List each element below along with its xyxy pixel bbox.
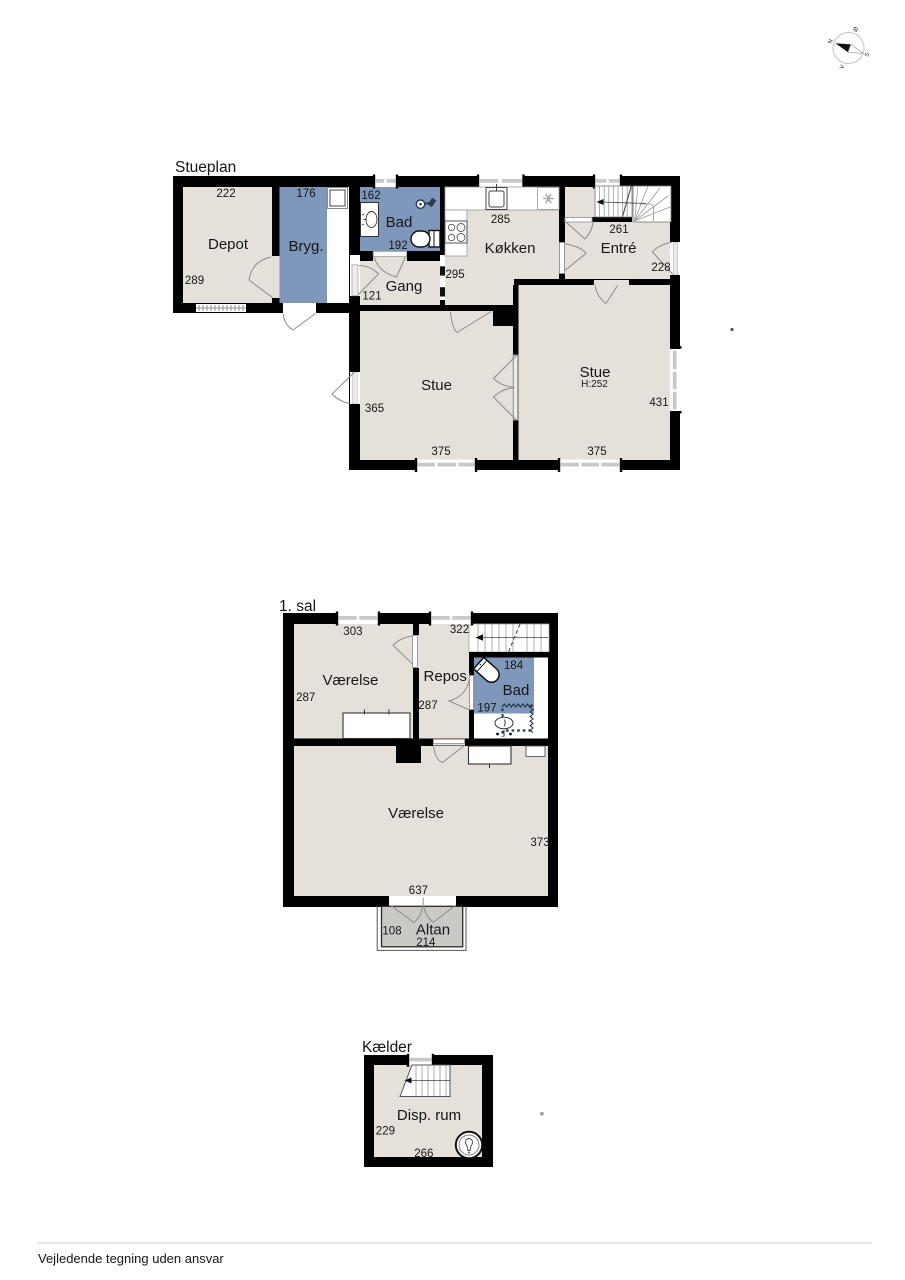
svg-text:Værelse: Værelse	[388, 805, 444, 822]
svg-text:108: 108	[382, 926, 401, 938]
svg-text:Altan: Altan	[416, 922, 450, 939]
svg-text:Køkken: Køkken	[485, 240, 536, 257]
svg-text:Repos: Repos	[424, 668, 467, 685]
svg-text:121: 121	[362, 291, 381, 303]
svg-text:Stue: Stue	[421, 377, 452, 394]
svg-text:373: 373	[530, 837, 549, 849]
svg-text:228: 228	[651, 262, 670, 274]
svg-text:H:252: H:252	[581, 379, 608, 390]
svg-text:295: 295	[445, 269, 464, 281]
svg-text:Stueplan: Stueplan	[175, 159, 236, 176]
svg-text:176: 176	[296, 188, 315, 200]
svg-text:214: 214	[416, 937, 436, 949]
svg-text:1. sal: 1. sal	[279, 598, 316, 615]
svg-text:375: 375	[431, 446, 450, 458]
svg-text:375: 375	[587, 446, 606, 458]
svg-text:Bryg.: Bryg.	[288, 238, 323, 255]
svg-text:Entré: Entré	[601, 240, 637, 257]
svg-text:Værelse: Værelse	[322, 672, 378, 689]
svg-text:Gang: Gang	[386, 278, 423, 295]
svg-text:Bad: Bad	[386, 214, 413, 231]
svg-text:303: 303	[343, 626, 362, 638]
svg-text:192: 192	[388, 240, 407, 252]
svg-text:322: 322	[450, 624, 469, 636]
svg-text:222: 222	[216, 188, 235, 200]
svg-text:197: 197	[477, 703, 496, 715]
svg-text:637: 637	[409, 885, 428, 897]
svg-text:285: 285	[491, 214, 510, 226]
svg-text:287: 287	[418, 700, 437, 712]
svg-text:266: 266	[414, 1148, 433, 1160]
svg-text:Disp. rum: Disp. rum	[397, 1107, 461, 1124]
svg-text:Vejledende tegning uden ansvar: Vejledende tegning uden ansvar	[38, 1251, 224, 1266]
svg-text:287: 287	[296, 692, 315, 704]
svg-text:261: 261	[609, 224, 628, 236]
svg-text:Bad: Bad	[503, 682, 530, 699]
svg-text:Depot: Depot	[208, 236, 249, 253]
svg-text:184: 184	[504, 660, 524, 672]
svg-text:289: 289	[185, 275, 204, 287]
svg-text:229: 229	[376, 1126, 395, 1138]
svg-text:365: 365	[365, 403, 384, 415]
svg-text:431: 431	[649, 397, 668, 409]
svg-text:Kælder: Kælder	[362, 1039, 412, 1056]
svg-text:162: 162	[361, 190, 380, 202]
